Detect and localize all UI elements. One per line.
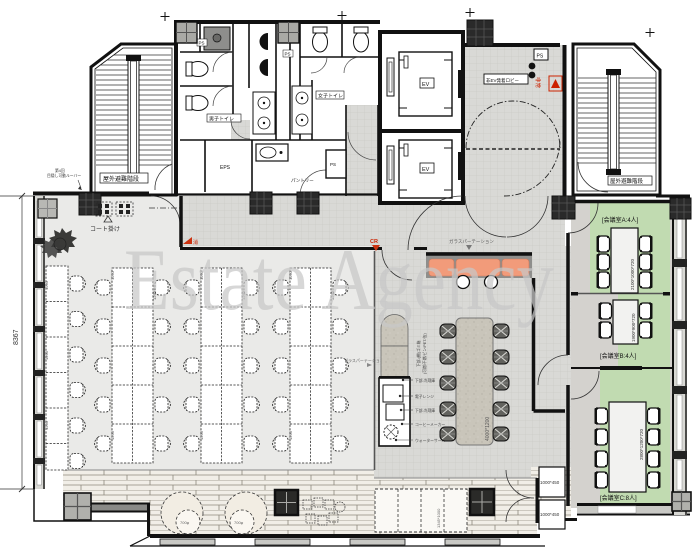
svg-text:2100*1000*720: 2100*1000*720 (630, 258, 635, 290)
svg-text:PS: PS (199, 41, 205, 46)
svg-text:(可燃/不燃/ビン/PET/缶): (可燃/不燃/ビン/PET/缶) (422, 333, 427, 374)
svg-text:電子レンジ: 電子レンジ (415, 394, 434, 399)
svg-text:目隠し可動ルーバー: 目隠し可動ルーバー (47, 173, 81, 178)
svg-text:EV: EV (422, 167, 430, 173)
svg-text:非常: 非常 (534, 77, 542, 89)
svg-text:屋外避難階段: 屋外避難階段 (103, 175, 139, 183)
svg-text:ガラスパーテーション: ガラスパーテーション (344, 357, 384, 363)
svg-text:男子トイレ: 男子トイレ (209, 116, 234, 123)
svg-text:PS: PS (537, 54, 544, 60)
svg-text:下部:(棚)ゴミ箱: 下部:(棚)ゴミ箱 (416, 340, 421, 367)
svg-text:第4回: 第4回 (55, 168, 65, 173)
svg-text:[会議室C:8人]: [会議室C:8人] (600, 494, 637, 502)
svg-text:700φ: 700φ (180, 520, 190, 525)
svg-text:1260: 1260 (110, 430, 115, 440)
svg-text:700φ: 700φ (234, 520, 244, 525)
svg-text:EPS: EPS (220, 165, 231, 171)
svg-text:1260: 1260 (288, 430, 293, 440)
svg-text:1260: 1260 (199, 430, 204, 440)
svg-text:1000*450: 1000*450 (540, 512, 560, 517)
svg-text:屋外避難階段: 屋外避難階段 (610, 177, 644, 185)
svg-text:PS: PS (285, 52, 291, 57)
svg-text:1900*900*720: 1900*900*720 (631, 313, 636, 342)
svg-text:2800*1200*720: 2800*1200*720 (639, 428, 644, 460)
svg-text:コート掛け: コート掛け (90, 225, 120, 233)
svg-text:[会議室A:4人]: [会議室A:4人] (602, 216, 639, 224)
svg-text:Estate Agency: Estate Agency (124, 232, 554, 329)
svg-text:8367: 8367 (13, 329, 20, 345)
svg-text:下部:冷蔵庫: 下部:冷蔵庫 (415, 408, 435, 413)
svg-text:非EV発着ロビー: 非EV発着ロビー (486, 77, 520, 84)
svg-text:4000*1200: 4000*1200 (485, 417, 491, 441)
svg-text:[会議室B:4人]: [会議室B:4人] (600, 352, 637, 360)
svg-text:1260: 1260 (44, 420, 49, 430)
svg-text:パントリー: パントリー (291, 178, 314, 183)
svg-text:EV: EV (422, 82, 430, 88)
svg-text:女子トイレ: 女子トイレ (318, 93, 343, 100)
svg-text:下部:冷蔵庫: 下部:冷蔵庫 (415, 378, 435, 383)
svg-text:PS: PS (330, 162, 336, 167)
svg-text:1260: 1260 (44, 350, 49, 360)
svg-text:コーヒーメーカー: コーヒーメーカー (415, 422, 445, 427)
svg-text:1260: 1260 (44, 280, 49, 290)
svg-text:1260: 1260 (110, 270, 115, 280)
svg-text:1000*450: 1000*450 (540, 480, 560, 485)
svg-text:1345*1000: 1345*1000 (436, 508, 441, 528)
